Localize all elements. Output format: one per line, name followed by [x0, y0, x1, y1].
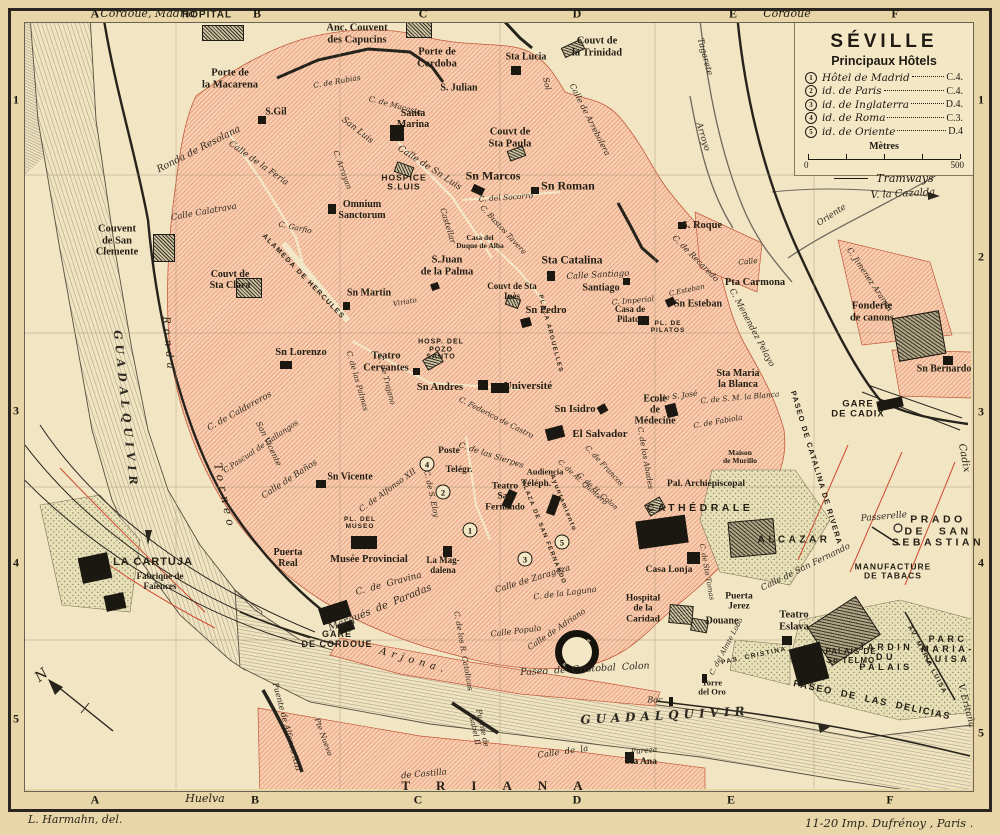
grid-col-top: E [729, 7, 737, 22]
grid-row-left: 5 [13, 712, 19, 727]
grid-col-bottom: B [251, 793, 259, 808]
map-plate: PL. DE TOROS Cordoue, MadridHÔPITALCordo… [0, 0, 1000, 835]
grid-col-top: C [419, 7, 428, 22]
cartographer-credit: L. Harmahn, del. [28, 813, 122, 826]
grid-col-bottom: E [727, 793, 735, 808]
grid-row-right: 5 [978, 726, 984, 741]
grid-label-layer: ABCDEFABCDEF134512345 [0, 0, 1000, 835]
grid-col-top: B [253, 7, 261, 22]
grid-row-right: 1 [978, 93, 984, 108]
grid-col-bottom: C [414, 793, 423, 808]
grid-col-top: A [91, 7, 100, 22]
page: PL. DE TOROS Cordoue, MadridHÔPITALCordo… [0, 0, 1000, 835]
grid-col-top: D [573, 7, 582, 22]
grid-row-right: 2 [978, 250, 984, 265]
grid-row-left: 3 [13, 404, 19, 419]
grid-row-left: 1 [13, 93, 19, 108]
grid-col-bottom: F [886, 793, 893, 808]
printer-credit: 11-20 Imp. Dufrénoy , Paris . [805, 816, 973, 830]
grid-row-right: 3 [978, 405, 984, 420]
grid-row-right: 4 [978, 556, 984, 571]
grid-col-top: F [891, 7, 898, 22]
grid-row-left: 4 [13, 556, 19, 571]
grid-col-bottom: D [573, 793, 582, 808]
grid-col-bottom: A [91, 793, 100, 808]
